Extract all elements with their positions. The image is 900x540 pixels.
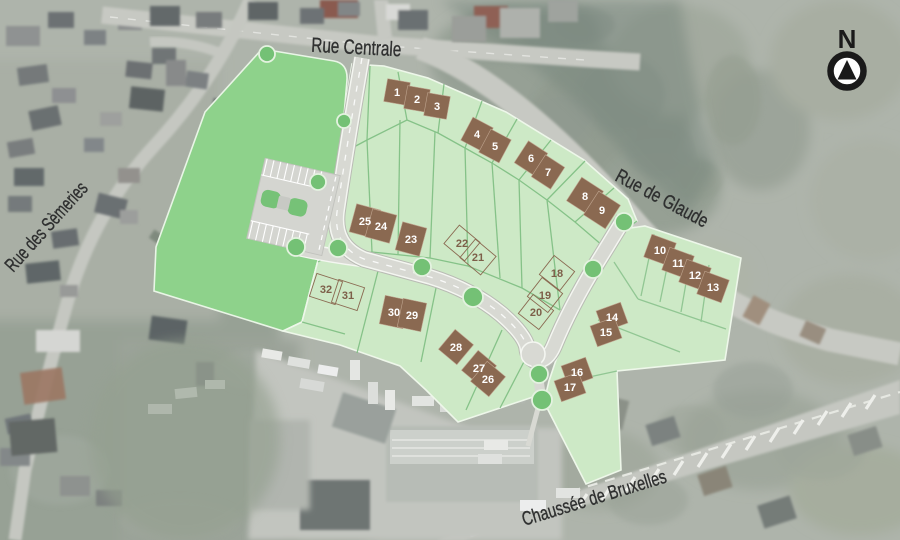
svg-text:16: 16	[571, 367, 583, 379]
svg-text:20: 20	[530, 307, 542, 319]
svg-text:25: 25	[359, 216, 371, 228]
svg-text:8: 8	[582, 191, 588, 203]
svg-text:31: 31	[342, 290, 354, 302]
svg-text:23: 23	[405, 234, 417, 246]
svg-text:N: N	[838, 24, 857, 54]
svg-text:24: 24	[375, 221, 388, 233]
svg-text:10: 10	[654, 245, 666, 257]
svg-text:26: 26	[482, 374, 494, 386]
svg-text:6: 6	[528, 153, 534, 165]
svg-text:18: 18	[551, 268, 563, 280]
svg-text:4: 4	[474, 129, 481, 141]
svg-text:3: 3	[434, 101, 440, 113]
svg-text:17: 17	[564, 382, 576, 394]
svg-text:14: 14	[606, 312, 619, 324]
svg-text:13: 13	[707, 282, 719, 294]
svg-text:28: 28	[450, 342, 462, 354]
svg-text:29: 29	[406, 310, 418, 322]
svg-text:Rue Centrale: Rue Centrale	[311, 34, 402, 62]
svg-text:19: 19	[539, 290, 551, 302]
svg-text:21: 21	[472, 252, 484, 264]
svg-text:9: 9	[599, 205, 605, 217]
svg-text:2: 2	[414, 94, 420, 106]
svg-text:22: 22	[456, 238, 468, 250]
svg-text:1: 1	[394, 87, 400, 99]
svg-text:11: 11	[672, 258, 684, 270]
svg-text:5: 5	[492, 141, 498, 153]
svg-text:30: 30	[388, 307, 400, 319]
svg-text:7: 7	[545, 167, 551, 179]
svg-text:15: 15	[600, 327, 612, 339]
svg-text:32: 32	[320, 284, 332, 296]
svg-text:12: 12	[689, 270, 701, 282]
